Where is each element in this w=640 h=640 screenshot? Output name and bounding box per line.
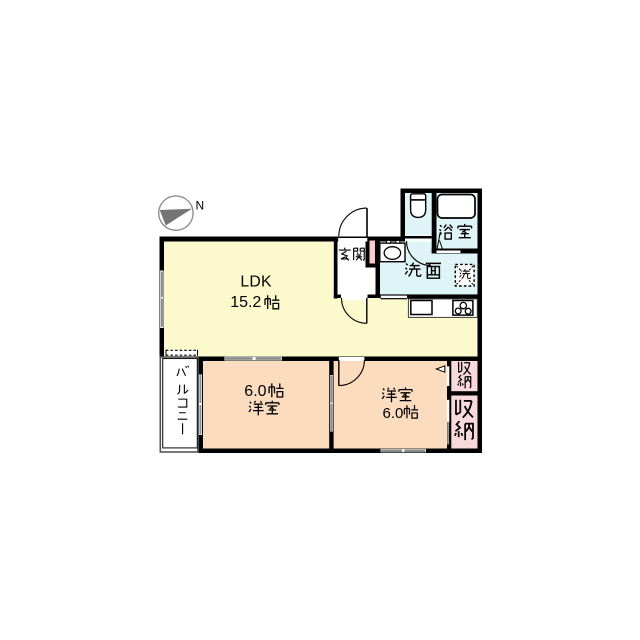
svg-text:6.0: 6.0 xyxy=(244,383,266,400)
svg-text:6.0: 6.0 xyxy=(383,405,404,422)
svg-text:N: N xyxy=(196,199,205,213)
svg-text:15.2: 15.2 xyxy=(230,294,261,311)
svg-text:LDK: LDK xyxy=(240,274,272,291)
